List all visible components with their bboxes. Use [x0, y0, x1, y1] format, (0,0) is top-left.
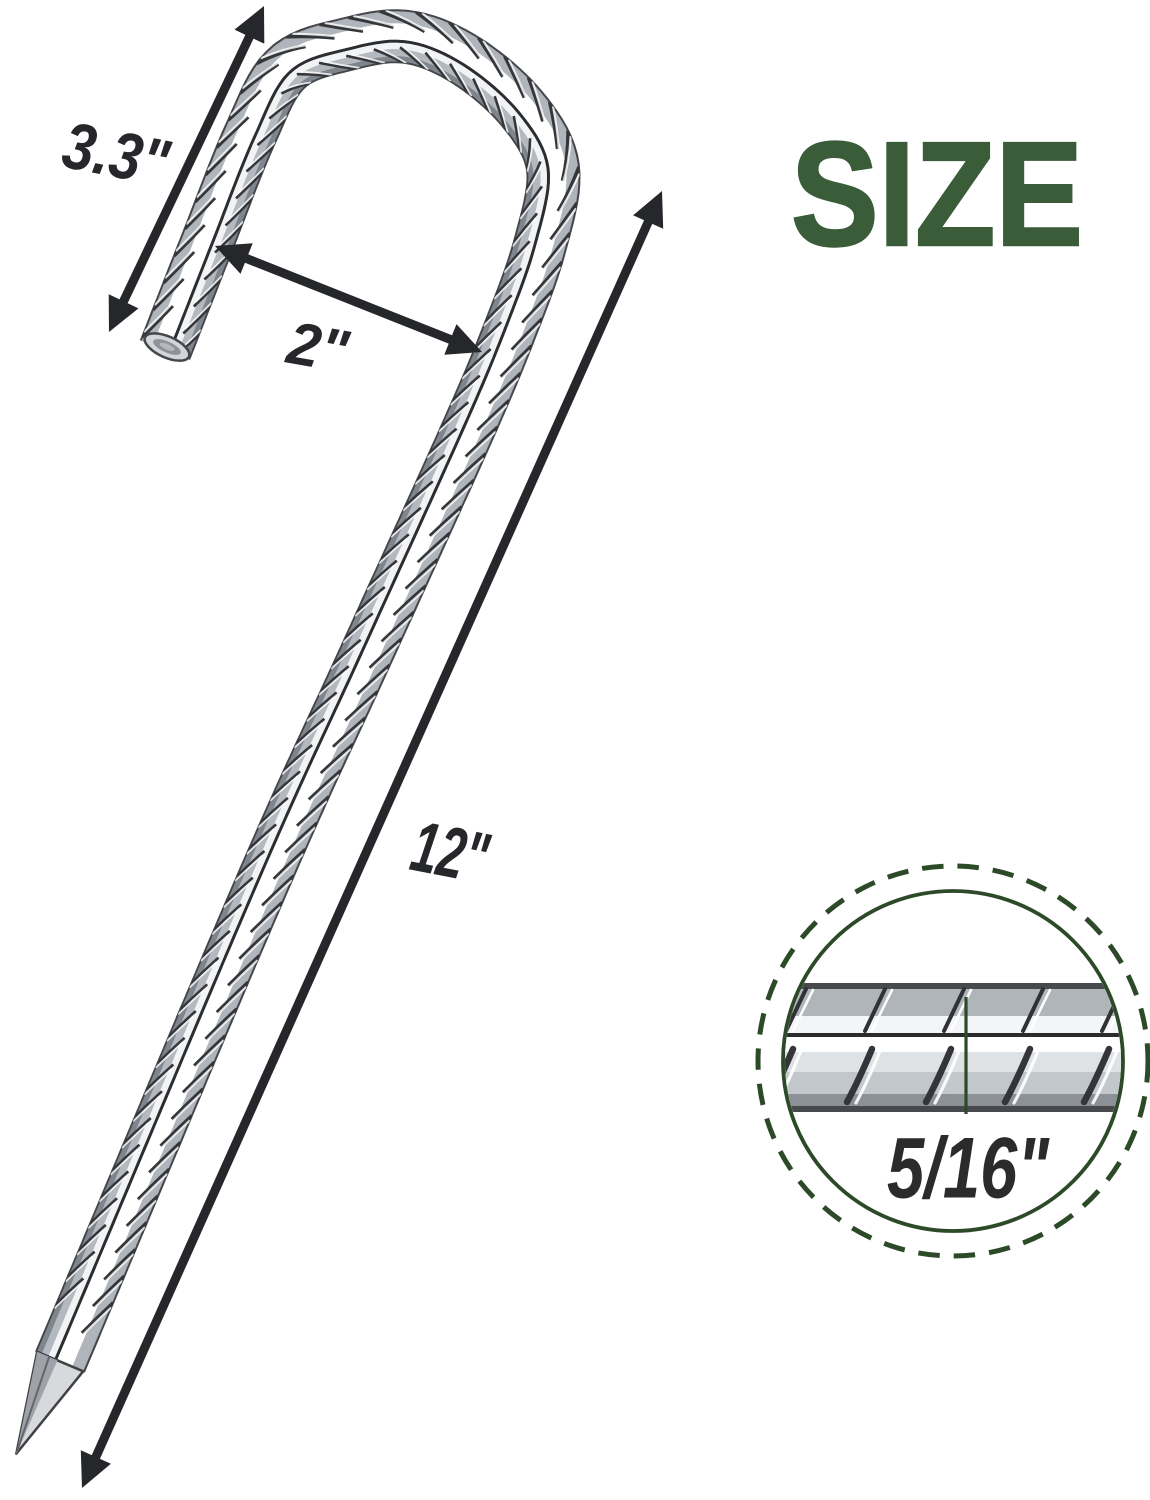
svg-text:SIZE: SIZE — [791, 112, 1083, 277]
svg-text:12": 12" — [405, 806, 495, 899]
svg-text:5/16": 5/16" — [887, 1121, 1050, 1217]
